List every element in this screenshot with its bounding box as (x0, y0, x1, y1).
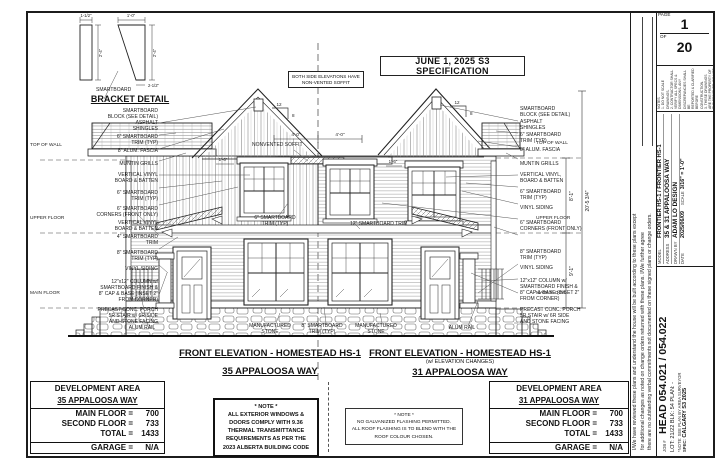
rail-label: ALUM RAIL (120, 326, 164, 332)
material-label: VINYL SIDING (520, 266, 590, 272)
trim-label: 12" SMARTBOARD TRIM (350, 222, 420, 228)
stone-label: MANUFACTURED STONE (352, 324, 400, 336)
entry-door-right (421, 247, 459, 319)
level-label: TOP OF WALL (30, 143, 62, 148)
table-row: TOTAL =1433 (490, 429, 628, 439)
development-area-table-35: DEVELOPMENT AREA 35 APPALOOSA WAY MAIN F… (30, 381, 165, 454)
spec-banner: JUNE 1, 2025 S3 SPECIFICATION (380, 56, 525, 76)
centerline-extension (328, 382, 329, 452)
table-row: MAIN FLOOR =700 (31, 409, 164, 419)
level-label: UPPER FLOOR (30, 216, 64, 221)
trim-label: 6" SMARTBOARD TRIM (TYP) (252, 216, 298, 228)
material-label: 8" ALUM. FASCIA (96, 149, 158, 155)
material-label: 8" ALUM. FASCIA (520, 148, 590, 154)
material-label: VERTICAL VINYL BOARD & BATTEN (96, 221, 158, 233)
note-windows: * NOTE * ALL EXTERIOR WINDOWS & DOORS CO… (213, 398, 319, 457)
table-row-garage: GARAGE =N/A (31, 443, 164, 453)
job-info-section: JOB # HEAD 054.021 / 054.022 LOT: 21/22 … (656, 266, 713, 454)
dev-table-title: DEVELOPMENT AREA (31, 382, 164, 394)
material-label: 6" SMARTBOARD CORNERS (FRONT ONLY) (520, 221, 590, 233)
title-block: PAGE 1 OF 20 JOB # HEAD 054.021 / 054.02… (656, 11, 713, 454)
trim-label: 8" SMARTBOARD TRIM (TYP) (298, 324, 346, 336)
table-row: SECOND FLOOR =733 (490, 419, 628, 429)
pitch-run-left: 12 (276, 102, 282, 107)
main-window-right (328, 239, 392, 305)
dim-win-left: 1'-6" (219, 157, 228, 162)
table-row-garage: GARAGE =N/A (490, 443, 628, 453)
dim-soffit-right: 4'-0" (335, 132, 345, 137)
signature-line[interactable] (634, 17, 643, 146)
field-drawn-by: DRAWN BY ADAM LO DESIGN (672, 114, 680, 264)
blueprint-sheet: 8'-1" 9'-1" 20'-5 3/4" 4'-0" 4'-0" 1'-6"… (0, 0, 720, 465)
material-label: VINYL SIDING (96, 267, 158, 273)
material-label: VERTICAL VINYL, BOARD & BATTEN (520, 173, 590, 185)
material-label: SMARTBOARD BLOCK (SEE DETAIL) (96, 109, 158, 121)
material-label: 6" SMARTBOARD TRIM (TYP) (520, 190, 590, 202)
lot-block-plan: LOT: 21/22 BLK: 54 PLAN: - (670, 269, 677, 452)
job-number: HEAD 054.021 / 054.022 (657, 317, 670, 434)
rail-label: ALUM RAIL (440, 326, 484, 332)
material-label: PRECAST CONC. PORCH 5R STAIR w/ 6R SIDE … (88, 308, 158, 326)
soffit-label: NONVENTED SOFFIT (252, 143, 322, 149)
disclaimer-text: I/We have reviewed these plans and under… (630, 152, 656, 454)
bracket-detail-shapes (80, 25, 145, 80)
material-label: MUNTIN GRILLS (520, 162, 590, 168)
porch-column-left (156, 253, 174, 308)
dev-table-address: 35 APPALOOSA WAY (31, 394, 164, 406)
material-label: 8" SMARTBOARD TRIM (TYP) (520, 250, 590, 262)
elevation-title-right: FRONT ELEVATION - HOMESTEAD HS-1 (345, 348, 575, 359)
table-row: MAIN FLOOR =700 (490, 409, 628, 419)
note-flashing: * NOTE * NO GALVANIZED FLASHING PERMITTE… (345, 408, 463, 445)
material-label: VERTICAL VINYL BOARD & BATTEN (96, 173, 158, 185)
material-label: VINYL SIDING (520, 206, 590, 212)
table-row: SECOND FLOOR =733 (31, 419, 164, 429)
dev-table-title: DEVELOPMENT AREA (490, 382, 628, 394)
material-label: 6" SMARTBOARD CORNERS (FRONT ONLY) (90, 207, 158, 219)
job-label: JOB # (662, 434, 667, 452)
material-label: SMARTBOARD BLOCK (SEE DETAIL) (520, 107, 590, 119)
drawing-info-section: MODEL FRONTIER HS-1 / FRONTIER HS-1 ADDR… (656, 111, 713, 266)
material-label: 8" SMARTBOARD TRIM (TYP) (96, 251, 158, 263)
elevation-address-right: 31 APPALOOSA WAY (345, 367, 575, 378)
bracket-dim-h2: 2'-4" (152, 48, 157, 57)
material-label: 4" SMARTBOARD TRIM (96, 235, 158, 247)
level-label: MAIN FLOOR (30, 291, 60, 296)
bracket-detail-title: BRACKET DETAIL (70, 94, 190, 104)
stone-label: MANUFACTURED STONE (246, 324, 294, 336)
development-area-table-31: DEVELOPMENT AREA 31 APPALOOSA WAY MAIN F… (489, 381, 629, 454)
entry-door-left (173, 247, 211, 319)
elevation-subtitle-right: (w/ ELEVATION CHANGES) (345, 359, 575, 365)
pitch-rise-left: 8 (292, 113, 295, 118)
elevation-title-text: FRONT ELEVATION - HOMESTEAD HS-1 (369, 348, 551, 359)
level-label: MAIN FLOOR (536, 291, 566, 296)
bracket-part-label: SMARTBOARD (96, 88, 156, 94)
field-date-scale: DATE 2025/06/09 SCALE 3/16" = 1'-0" (680, 114, 686, 264)
field-address: ADDRESS 35 & 31 APPALOOSA WAY (664, 114, 672, 264)
dev-table-address: 31 APPALOOSA WAY (490, 394, 628, 406)
level-label: TOP OF WALL (536, 141, 568, 146)
material-label: MUNTIN GRILLS (96, 162, 158, 168)
upper-window-left (237, 157, 291, 221)
pitch-run-right: 12 (454, 100, 460, 105)
dim-win-right: 1'-6" (389, 159, 398, 164)
page-total: 20 (656, 40, 713, 54)
table-row: TOTAL =1433 (31, 429, 164, 439)
material-label: 6" SMARTBOARD TRIM (TYP) (96, 191, 158, 203)
signature-area (630, 11, 656, 152)
spec-line: SPEC: CALGARY S3 2025 (682, 269, 689, 452)
porch-column-right (460, 253, 478, 308)
level-label: UPPER FLOOR (536, 216, 570, 221)
page-number-box: PAGE 1 OF 20 (656, 11, 713, 66)
bracket-dim-w2: 1'-0" (127, 13, 136, 18)
soffit-note-box: BOTH SIDE ELEVATIONS HAVE NON-VENTED SOF… (288, 71, 364, 88)
material-label: 6" SMARTBOARD TRIM (TYP) (96, 135, 158, 147)
material-label: ASPHALT SHINGLES (96, 121, 158, 133)
material-label: PRECAST CONC. PORCH 5R STAIR w/ 6R SIDE … (520, 308, 590, 326)
dim-soffit-left: 4'-0" (291, 132, 301, 137)
page-number: 1 (656, 17, 713, 31)
signature-line[interactable] (644, 17, 653, 146)
main-window-left (244, 239, 308, 305)
bracket-dim-h1: 2'-4" (98, 48, 103, 57)
field-model: MODEL FRONTIER HS-1 / FRONTIER HS-1 (657, 114, 664, 264)
disclaimer-column: I/We have reviewed these plans and under… (630, 11, 656, 454)
bracket-dim-w1: 1-1/2" (80, 13, 92, 18)
material-label: ASPHALT SHINGLES (520, 120, 590, 132)
upper-window-right (323, 159, 377, 223)
elevation-title-text: FRONT ELEVATION - HOMESTEAD HS-1 (179, 348, 361, 359)
general-notes-section: NOTES 1. DO NOT SCALE DRAWINGS. 2. CONTR… (656, 65, 713, 111)
material-label: 12"x12" COLUMN w/ SMARTBOARD FINISH & 8"… (88, 280, 158, 304)
